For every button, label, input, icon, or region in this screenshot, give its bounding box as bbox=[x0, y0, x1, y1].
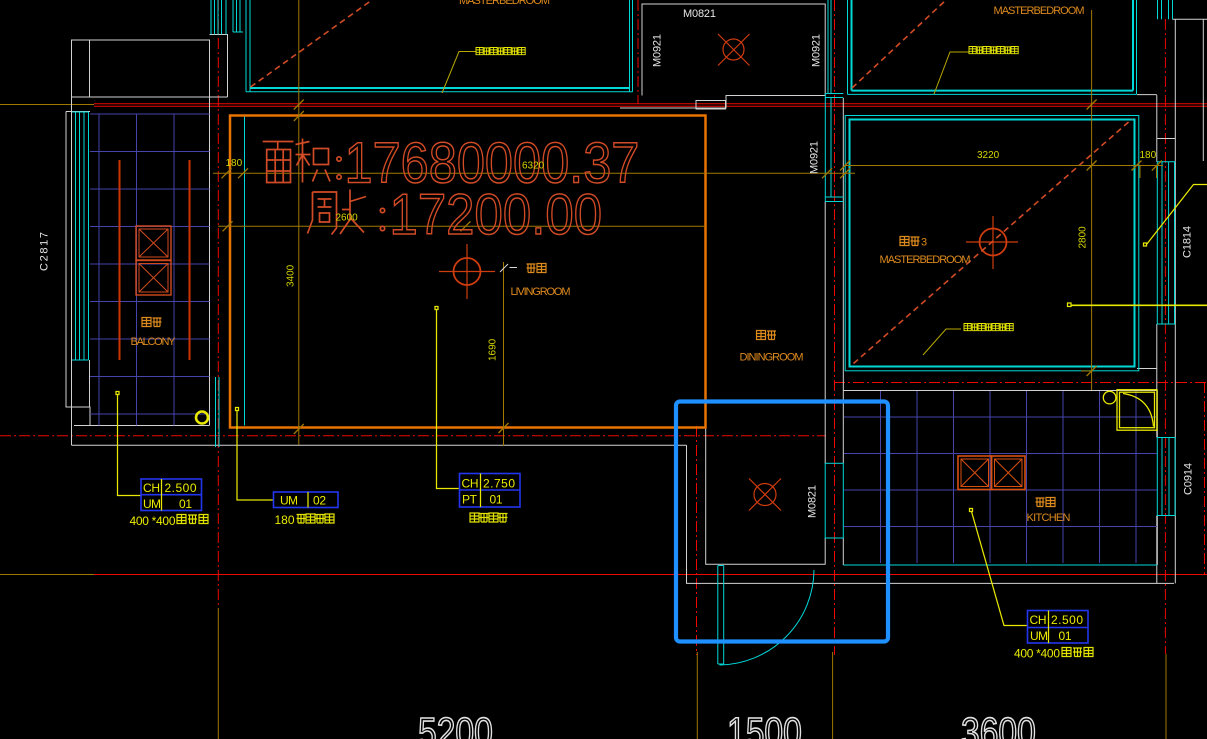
svg-text:2800: 2800 bbox=[1078, 226, 1089, 249]
svg-text:1690: 1690 bbox=[488, 338, 499, 361]
svg-text:180: 180 bbox=[226, 158, 243, 169]
svg-text:180: 180 bbox=[275, 513, 295, 527]
svg-text:UM: UM bbox=[143, 497, 161, 511]
svg-text:LIVINGROOM: LIVINGROOM bbox=[511, 286, 571, 298]
svg-text:M0821: M0821 bbox=[807, 485, 819, 518]
svg-text:3400: 3400 bbox=[286, 264, 297, 287]
svg-text:C1814: C1814 bbox=[1182, 226, 1194, 258]
svg-text:1500: 1500 bbox=[727, 709, 802, 739]
svg-text:400 *400: 400 *400 bbox=[1014, 647, 1060, 661]
svg-text:01: 01 bbox=[1059, 629, 1072, 643]
svg-text:UM: UM bbox=[1030, 629, 1048, 643]
svg-text:01: 01 bbox=[179, 497, 192, 511]
svg-text:MASTERBEDROOM: MASTERBEDROOM bbox=[994, 5, 1085, 17]
svg-text:C2817: C2817 bbox=[39, 232, 51, 271]
svg-text:CH: CH bbox=[1030, 613, 1047, 627]
svg-text:CH: CH bbox=[462, 477, 479, 491]
svg-text:M0921: M0921 bbox=[811, 34, 823, 67]
svg-text:PT: PT bbox=[462, 493, 478, 507]
svg-text:17200.00: 17200.00 bbox=[390, 182, 603, 247]
svg-text:M0921: M0921 bbox=[652, 34, 664, 67]
svg-text:KITCHEN: KITCHEN bbox=[1027, 512, 1071, 524]
svg-text:BALCONY: BALCONY bbox=[131, 336, 177, 348]
svg-text:UM: UM bbox=[280, 494, 298, 508]
svg-text:02: 02 bbox=[313, 494, 326, 508]
svg-text:MASTERBEDROOM: MASTERBEDROOM bbox=[459, 0, 550, 7]
svg-text:M0821: M0821 bbox=[683, 8, 716, 20]
svg-text:400 *400: 400 *400 bbox=[130, 514, 176, 528]
svg-text:2.500: 2.500 bbox=[1051, 613, 1083, 627]
svg-text:C0914: C0914 bbox=[1183, 463, 1195, 495]
svg-text:DININGROOM: DININGROOM bbox=[740, 352, 804, 364]
svg-text:6320: 6320 bbox=[522, 161, 545, 172]
svg-text:180: 180 bbox=[1140, 150, 1157, 161]
svg-text:5200: 5200 bbox=[418, 709, 493, 739]
svg-text:3: 3 bbox=[921, 237, 927, 249]
svg-text:2600: 2600 bbox=[336, 213, 359, 224]
svg-text:01: 01 bbox=[490, 493, 503, 507]
svg-text:2.500: 2.500 bbox=[165, 481, 197, 495]
svg-text:MASTERBEDROOM: MASTERBEDROOM bbox=[880, 254, 971, 266]
svg-text:M0921: M0921 bbox=[809, 141, 821, 174]
svg-text:CH: CH bbox=[143, 481, 160, 495]
svg-text:3600: 3600 bbox=[961, 709, 1036, 739]
svg-text:3220: 3220 bbox=[977, 150, 1000, 161]
svg-text:2.750: 2.750 bbox=[483, 477, 515, 491]
